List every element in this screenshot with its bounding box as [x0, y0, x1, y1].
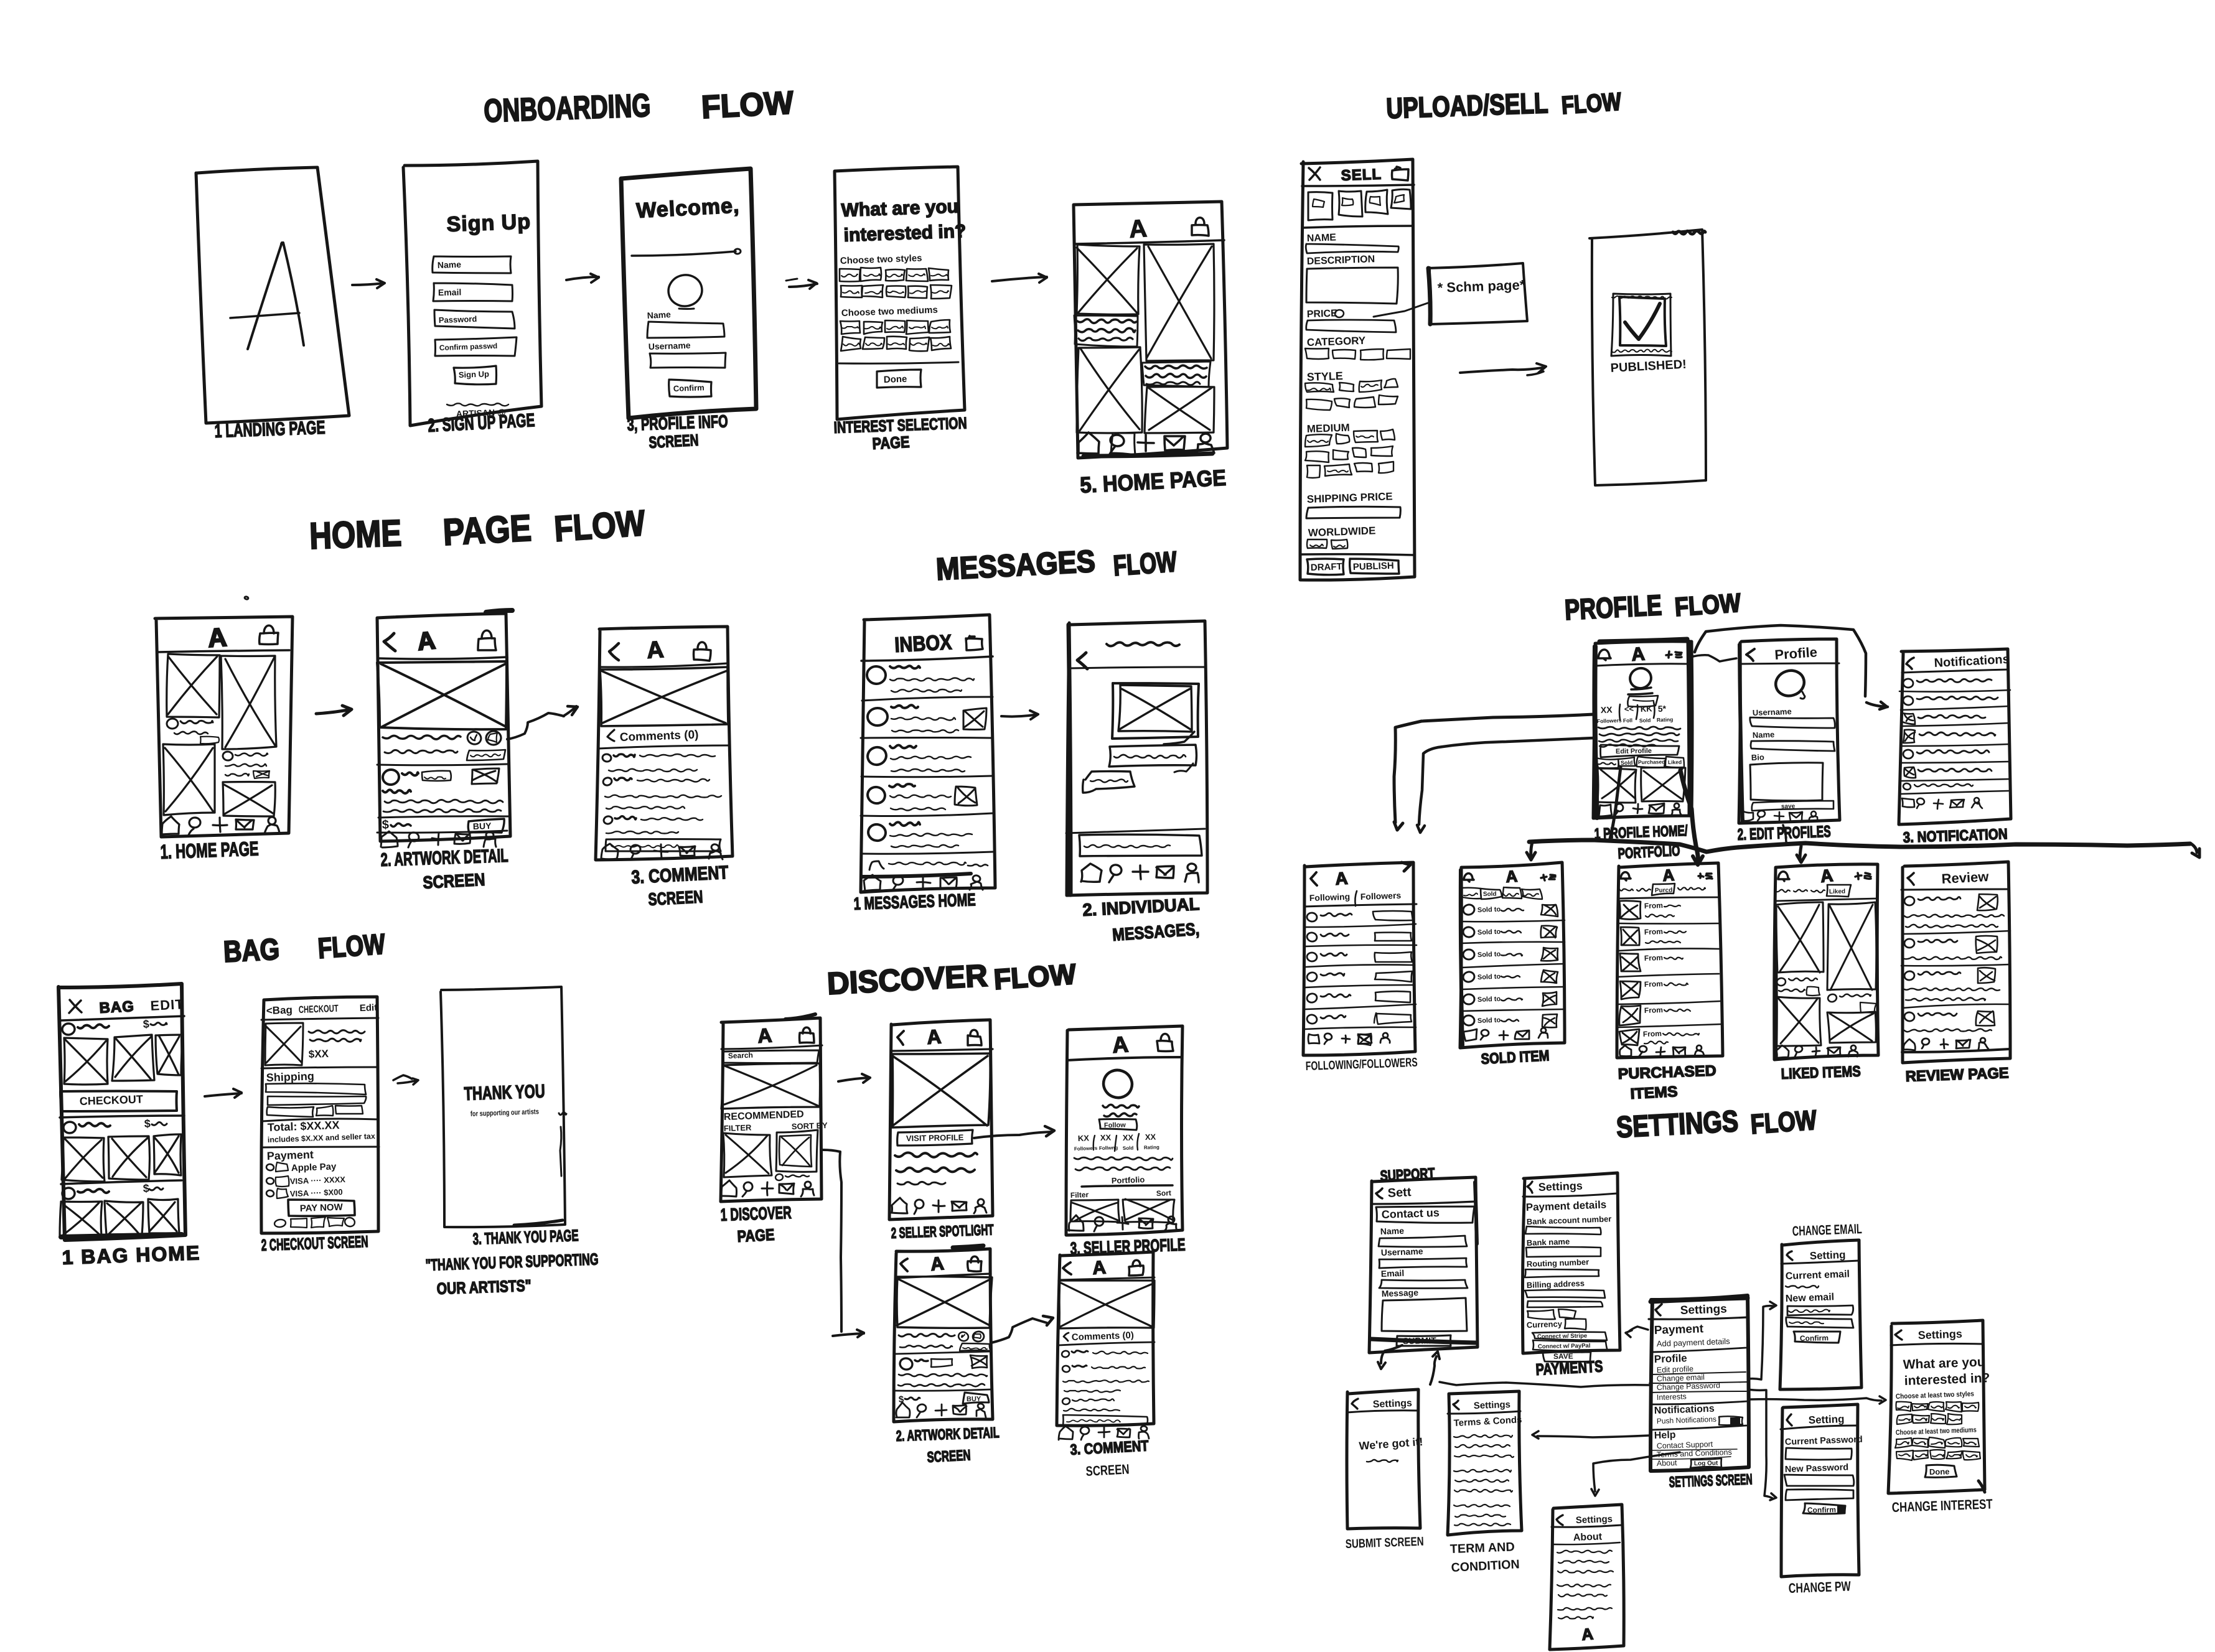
svg-text:THANK YOU: THANK YOU	[464, 1081, 545, 1104]
svg-text:Help: Help	[1654, 1430, 1676, 1441]
svg-text:From: From	[1644, 901, 1663, 910]
svg-text:PAGE: PAGE	[872, 432, 910, 453]
svg-text:A: A	[1112, 1031, 1130, 1058]
svg-text:A: A	[1819, 866, 1833, 886]
svg-text:Settings: Settings	[1680, 1302, 1727, 1317]
svg-text:Sold to: Sold to	[1477, 1017, 1501, 1025]
svg-text:From: From	[1644, 953, 1663, 963]
svg-text:Liked: Liked	[1829, 889, 1845, 895]
svg-text:PUBLISH: PUBLISH	[1353, 561, 1394, 572]
svg-text:FLOW: FLOW	[317, 928, 386, 964]
svg-text:Bank name: Bank name	[1527, 1237, 1570, 1248]
svg-text:BAG: BAG	[99, 998, 135, 1017]
svg-text:Sold to: Sold to	[1477, 928, 1501, 936]
svg-text:PAGE: PAGE	[737, 1225, 775, 1246]
svg-text:Sort: Sort	[1156, 1188, 1171, 1198]
svg-text:SCREEN: SCREEN	[649, 431, 699, 452]
svg-text:Confirm: Confirm	[673, 383, 705, 393]
svg-text:A: A	[930, 1253, 945, 1275]
svg-text:Sold: Sold	[1483, 891, 1497, 898]
svg-text:MEDIUM: MEDIUM	[1306, 422, 1350, 435]
svg-text:BUY: BUY	[473, 821, 492, 831]
svg-text:CHANGE EMAIL: CHANGE EMAIL	[1792, 1221, 1862, 1239]
svg-text:Notifications: Notifications	[1654, 1404, 1715, 1416]
svg-text:SORT BY: SORT BY	[792, 1121, 828, 1131]
svg-text:ONBOARDING: ONBOARDING	[483, 88, 651, 129]
svg-text:CATEGORY: CATEGORY	[1306, 335, 1366, 348]
svg-text:Filter: Filter	[1070, 1190, 1089, 1200]
svg-text:TERM AND: TERM AND	[1449, 1540, 1515, 1556]
svg-text:Connect w/ Stripe: Connect w/ Stripe	[1537, 1333, 1587, 1340]
svg-text:Name: Name	[1380, 1226, 1405, 1236]
svg-text:PAGE: PAGE	[442, 507, 532, 553]
svg-text:What are you: What are you	[841, 196, 958, 221]
svg-text:New email: New email	[1786, 1292, 1835, 1304]
svg-text:Name: Name	[438, 259, 462, 270]
svg-text:Search: Search	[728, 1051, 753, 1060]
svg-text:Portfolio: Portfolio	[1112, 1175, 1145, 1185]
svg-text:XX: XX	[1123, 1132, 1134, 1142]
svg-text:PROFILE: PROFILE	[1564, 589, 1663, 626]
svg-text:VISA ···· XXXX: VISA ···· XXXX	[290, 1175, 346, 1186]
svg-text:Sett: Sett	[1387, 1185, 1412, 1200]
svg-text:ITEMS: ITEMS	[1630, 1083, 1678, 1103]
svg-text:Total: $XX.XX: Total: $XX.XX	[267, 1119, 339, 1134]
svg-text:Payment: Payment	[1654, 1322, 1704, 1337]
svg-text:Settings: Settings	[1373, 1398, 1413, 1410]
svg-text:Rating: Rating	[1144, 1144, 1159, 1150]
svg-text:SOLD ITEM: SOLD ITEM	[1481, 1047, 1550, 1068]
svg-text:BAG: BAG	[223, 933, 281, 969]
svg-text:PURCHASED: PURCHASED	[1618, 1062, 1716, 1082]
svg-text:Comments (0): Comments (0)	[1072, 1330, 1135, 1343]
svg-text:PAY NOW: PAY NOW	[300, 1202, 344, 1214]
svg-text:Sign Up: Sign Up	[446, 210, 532, 236]
svg-text:3. THANK YOU PAGE: 3. THANK YOU PAGE	[472, 1226, 579, 1248]
svg-text:Sold: Sold	[1621, 760, 1633, 766]
svg-text:<<: <<	[1624, 704, 1634, 714]
svg-text:Sold to: Sold to	[1477, 996, 1501, 1004]
svg-text:SCREEN: SCREEN	[1085, 1461, 1130, 1479]
svg-text:2 CHECKOUT SCREEN: 2 CHECKOUT SCREEN	[261, 1232, 368, 1254]
svg-text:Comments (0): Comments (0)	[619, 729, 698, 744]
svg-text:* Schm page*: * Schm page*	[1437, 277, 1525, 296]
svg-text:Current email: Current email	[1786, 1269, 1850, 1282]
svg-text:Purchased: Purchased	[1638, 758, 1665, 765]
svg-text:Password: Password	[439, 314, 477, 325]
svg-text:A: A	[1581, 1624, 1595, 1644]
svg-text:1 DISCOVER: 1 DISCOVER	[720, 1203, 792, 1225]
svg-text:Edit: Edit	[360, 1002, 378, 1014]
svg-text:Foll: Foll	[1623, 717, 1632, 724]
svg-text:interested in?: interested in?	[843, 221, 967, 246]
svg-text:FLOW: FLOW	[1674, 588, 1741, 622]
svg-text:3, PROFILE INFO: 3, PROFILE INFO	[627, 411, 728, 434]
svg-text:Rating: Rating	[1657, 716, 1674, 723]
svg-text:Followers: Followers	[1074, 1146, 1098, 1152]
svg-text:What are you: What are you	[1903, 1355, 1985, 1372]
svg-text:Sold: Sold	[1639, 717, 1651, 724]
svg-text:Profile: Profile	[1654, 1352, 1687, 1365]
svg-text:SETTINGS SCREEN: SETTINGS SCREEN	[1669, 1471, 1753, 1491]
svg-text:interested in?: interested in?	[1904, 1371, 1990, 1388]
svg-text:EDIT: EDIT	[150, 996, 184, 1014]
svg-text:FLOW: FLOW	[1749, 1105, 1818, 1140]
svg-text:1. HOME PAGE: 1. HOME PAGE	[160, 838, 259, 863]
svg-text:WORLDWIDE: WORLDWIDE	[1308, 525, 1375, 539]
svg-text:A: A	[1505, 867, 1518, 886]
svg-text:A: A	[416, 627, 436, 656]
svg-text:KX: KX	[1078, 1133, 1090, 1143]
svg-text:Username: Username	[649, 340, 691, 352]
svg-text:Username: Username	[1381, 1246, 1423, 1258]
svg-text:Follow: Follow	[1104, 1121, 1126, 1129]
svg-text:FLOW: FLOW	[993, 958, 1077, 996]
svg-text:Confirm: Confirm	[1807, 1505, 1836, 1514]
svg-text:Settings: Settings	[1576, 1514, 1613, 1526]
svg-text:VISIT PROFILE: VISIT PROFILE	[906, 1132, 964, 1143]
svg-text:Sold: Sold	[1123, 1145, 1134, 1151]
svg-text:Settings: Settings	[1538, 1180, 1583, 1193]
svg-text:A: A	[1334, 869, 1348, 889]
svg-text:SCREEN: SCREEN	[648, 887, 704, 909]
svg-text:5*: 5*	[1658, 704, 1667, 714]
svg-text:Profile: Profile	[1774, 644, 1818, 663]
svg-text:STYLE: STYLE	[1306, 370, 1343, 383]
svg-text:OUR ARTISTS": OUR ARTISTS"	[436, 1276, 532, 1298]
svg-text:Connect w/ PayPal: Connect w/ PayPal	[1538, 1343, 1591, 1350]
svg-text:FLOW: FLOW	[1112, 545, 1178, 582]
svg-text:A: A	[646, 637, 665, 664]
svg-text:$: $	[144, 1118, 151, 1130]
svg-text:From: From	[1644, 979, 1663, 989]
svg-text:HOME: HOME	[309, 512, 402, 557]
svg-text:About: About	[1573, 1531, 1603, 1543]
svg-text:XX: XX	[1100, 1132, 1112, 1142]
svg-text:Log Out: Log Out	[1694, 1460, 1718, 1467]
svg-text:From: From	[1644, 1006, 1663, 1015]
svg-text:A: A	[926, 1025, 942, 1048]
svg-text:Follwng: Follwng	[1099, 1145, 1118, 1151]
svg-text:Done: Done	[1929, 1467, 1950, 1477]
svg-text:FLOW: FLOW	[701, 85, 795, 126]
svg-text:VISA ···· $X00: VISA ···· $X00	[290, 1187, 343, 1198]
svg-text:PAYMENTS: PAYMENTS	[1535, 1356, 1603, 1379]
svg-text:CHANGE PW: CHANGE PW	[1788, 1579, 1851, 1596]
svg-text:FLOW: FLOW	[553, 503, 646, 549]
svg-text:$: $	[143, 1182, 149, 1195]
svg-text:CHECKOUT: CHECKOUT	[79, 1093, 143, 1108]
svg-text:Payment: Payment	[266, 1148, 314, 1162]
svg-text:$XX: $XX	[308, 1048, 329, 1060]
svg-text:save: save	[1781, 803, 1796, 810]
svg-text:Sold to: Sold to	[1477, 951, 1501, 959]
svg-text:FLOW: FLOW	[1561, 88, 1623, 119]
svg-text:$: $	[143, 1018, 149, 1030]
svg-text:Setting: Setting	[1808, 1413, 1844, 1426]
svg-text:Name: Name	[647, 309, 671, 320]
svg-text:BUY: BUY	[967, 1396, 981, 1403]
svg-text:LIKED ITEMS: LIKED ITEMS	[1781, 1063, 1861, 1083]
svg-text:A: A	[207, 622, 228, 653]
svg-text:PRICE: PRICE	[1307, 308, 1338, 320]
svg-text:Interests: Interests	[1657, 1392, 1687, 1402]
svg-text:SCREEN: SCREEN	[423, 870, 485, 892]
svg-text:Sold to: Sold to	[1477, 906, 1501, 914]
svg-text:Done: Done	[884, 374, 907, 385]
svg-text:SUBMIT SCREEN: SUBMIT SCREEN	[1345, 1535, 1424, 1551]
svg-text:Shipping: Shipping	[266, 1070, 314, 1084]
svg-text:Bio: Bio	[1751, 752, 1765, 762]
svg-text:A: A	[1128, 215, 1148, 243]
svg-text:Settings: Settings	[1474, 1399, 1511, 1411]
svg-text:SELL: SELL	[1341, 166, 1382, 184]
svg-text:Setting: Setting	[1809, 1249, 1845, 1262]
svg-text:SCREEN: SCREEN	[927, 1447, 971, 1466]
svg-text:Username: Username	[1753, 707, 1792, 717]
svg-text:From: From	[1644, 927, 1663, 936]
svg-text:Currency: Currency	[1527, 1319, 1563, 1330]
svg-text:INBOX: INBOX	[894, 630, 952, 657]
svg-text:Followers: Followers	[1360, 890, 1402, 902]
svg-text:About: About	[1657, 1458, 1678, 1468]
svg-text:Message: Message	[1382, 1287, 1419, 1299]
svg-text:Confirm: Confirm	[1800, 1333, 1829, 1343]
svg-text:Settings: Settings	[1918, 1328, 1962, 1342]
svg-text:FILTER: FILTER	[724, 1122, 752, 1133]
svg-text:Contact us: Contact us	[1381, 1206, 1440, 1221]
svg-text:Review: Review	[1941, 869, 1990, 887]
svg-text:XX: XX	[1601, 704, 1613, 715]
svg-text:Followers: Followers	[1597, 717, 1622, 724]
svg-text:From: From	[1643, 1029, 1662, 1038]
svg-text:SUBMIT: SUBMIT	[1403, 1335, 1436, 1346]
svg-text:NAME: NAME	[1307, 232, 1337, 244]
svg-text:2 SELLER SPOTLIGHT: 2 SELLER SPOTLIGHT	[891, 1221, 994, 1242]
svg-text:KK: KK	[1641, 704, 1653, 714]
svg-text:Apple Pay: Apple Pay	[291, 1161, 337, 1174]
svg-text:Email: Email	[438, 287, 462, 297]
svg-text:Edit Profile: Edit Profile	[1616, 747, 1652, 755]
svg-text:A: A	[1631, 644, 1646, 665]
svg-text:Sold to: Sold to	[1477, 973, 1501, 981]
svg-text:A: A	[757, 1024, 773, 1047]
svg-text:SETTINGS: SETTINGS	[1616, 1105, 1740, 1144]
svg-text:Email: Email	[1381, 1268, 1405, 1279]
svg-text:CHECKOUT: CHECKOUT	[299, 1004, 339, 1015]
svg-text:XX: XX	[1145, 1132, 1156, 1142]
svg-text:$: $	[382, 818, 389, 832]
svg-text:Name: Name	[1753, 730, 1775, 740]
svg-text:UPLOAD/SELL: UPLOAD/SELL	[1386, 86, 1549, 124]
svg-text:Purcd: Purcd	[1655, 887, 1673, 894]
svg-text:1 LANDING PAGE: 1 LANDING PAGE	[214, 418, 325, 442]
svg-text:Sign Up: Sign Up	[459, 369, 490, 380]
svg-text:DRAFT: DRAFT	[1311, 561, 1342, 573]
svg-text:<Bag: <Bag	[266, 1004, 293, 1017]
svg-text:Liked: Liked	[1668, 759, 1682, 765]
svg-text:A: A	[1662, 866, 1675, 885]
svg-text:A: A	[1092, 1258, 1107, 1279]
svg-text:Following: Following	[1309, 892, 1351, 903]
